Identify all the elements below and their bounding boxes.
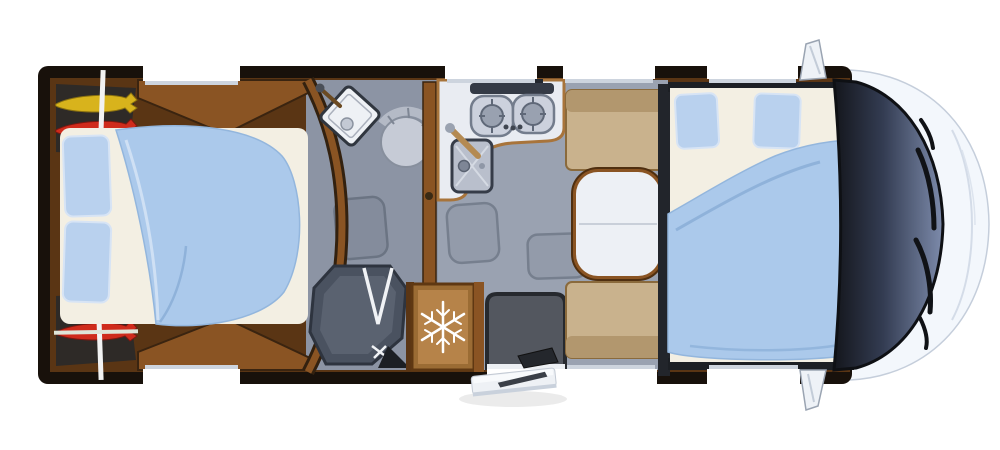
window-top-cab [707, 59, 798, 79]
window-top-cab-sill [709, 79, 796, 83]
entrance [487, 294, 565, 372]
bathroom-partition-wall [423, 82, 436, 296]
refrigerator [406, 282, 484, 372]
mirror-bottom-arm [800, 370, 826, 410]
hob-knob-1 [504, 125, 509, 130]
floorplan-canvas [0, 0, 1000, 450]
window-bottom-cab [707, 369, 800, 391]
dinette-table [572, 168, 664, 280]
toilet-lid-tick-2 [408, 108, 409, 118]
window-top-kitchen-sill [447, 79, 535, 83]
cab-bed-pillow-2 [753, 93, 801, 149]
sink-faucet-base [445, 123, 455, 133]
kitchen-backsplash [470, 83, 554, 94]
motorhome-floorplan [0, 0, 1000, 450]
bathroom-door-knob [425, 192, 433, 200]
sink-drain [459, 161, 470, 172]
window-top-kitchen [445, 59, 537, 79]
floor-hatch-corridor-1 [446, 202, 500, 263]
cab-bed-pillow-1 [675, 93, 720, 149]
sink-plug [479, 163, 485, 169]
window-top-dinette [563, 59, 655, 79]
bench-bottom-backrest [566, 336, 664, 358]
window-bottom-cab-sill [709, 365, 798, 369]
fridge-jamb-right [474, 282, 484, 372]
rear-bed-pillow-2 [63, 221, 112, 303]
window-bottom-bedroom [143, 369, 240, 391]
dinette [566, 84, 670, 376]
shower-drain [341, 118, 353, 130]
bench-top-backrest [566, 90, 664, 112]
window-bottom-dinette [565, 369, 657, 391]
hob-knob-3 [518, 125, 523, 130]
cab-bed [668, 82, 860, 370]
rear-bed-pillow-1 [63, 135, 112, 217]
window-bottom-dinette-sill [567, 365, 655, 369]
mirror-bottom [800, 370, 826, 410]
window-top-bedroom [143, 59, 240, 81]
hob-knob-2 [511, 126, 516, 131]
mirror-top [800, 40, 826, 80]
window-top-dinette-sill [565, 79, 653, 83]
shower-faucet-knob [316, 84, 325, 93]
window-bottom-bedroom-sill [145, 365, 238, 369]
window-top-bedroom-sill [145, 81, 238, 85]
mirror-top-arm [800, 40, 826, 80]
